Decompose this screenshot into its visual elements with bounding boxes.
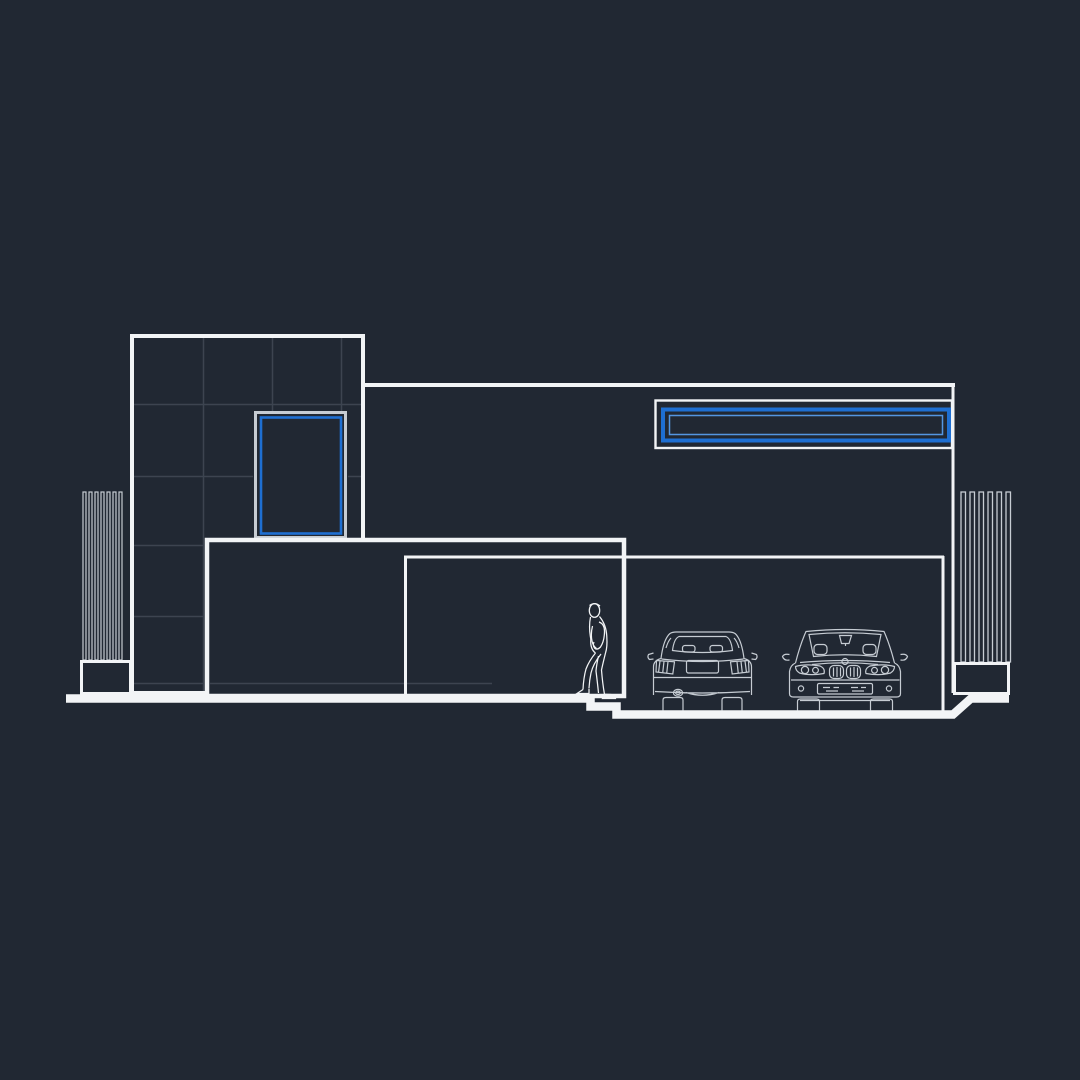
middle-wall-outline: [207, 540, 624, 696]
middle-front-wall: [207, 540, 624, 696]
right-fence-plinth: [955, 664, 1009, 694]
tower-window: [256, 413, 346, 538]
elevation-canvas: [0, 0, 1080, 1080]
left-fence-plinth: [82, 662, 131, 694]
tower-window-frame: [256, 413, 346, 538]
cad-viewport[interactable]: [0, 0, 1080, 1080]
